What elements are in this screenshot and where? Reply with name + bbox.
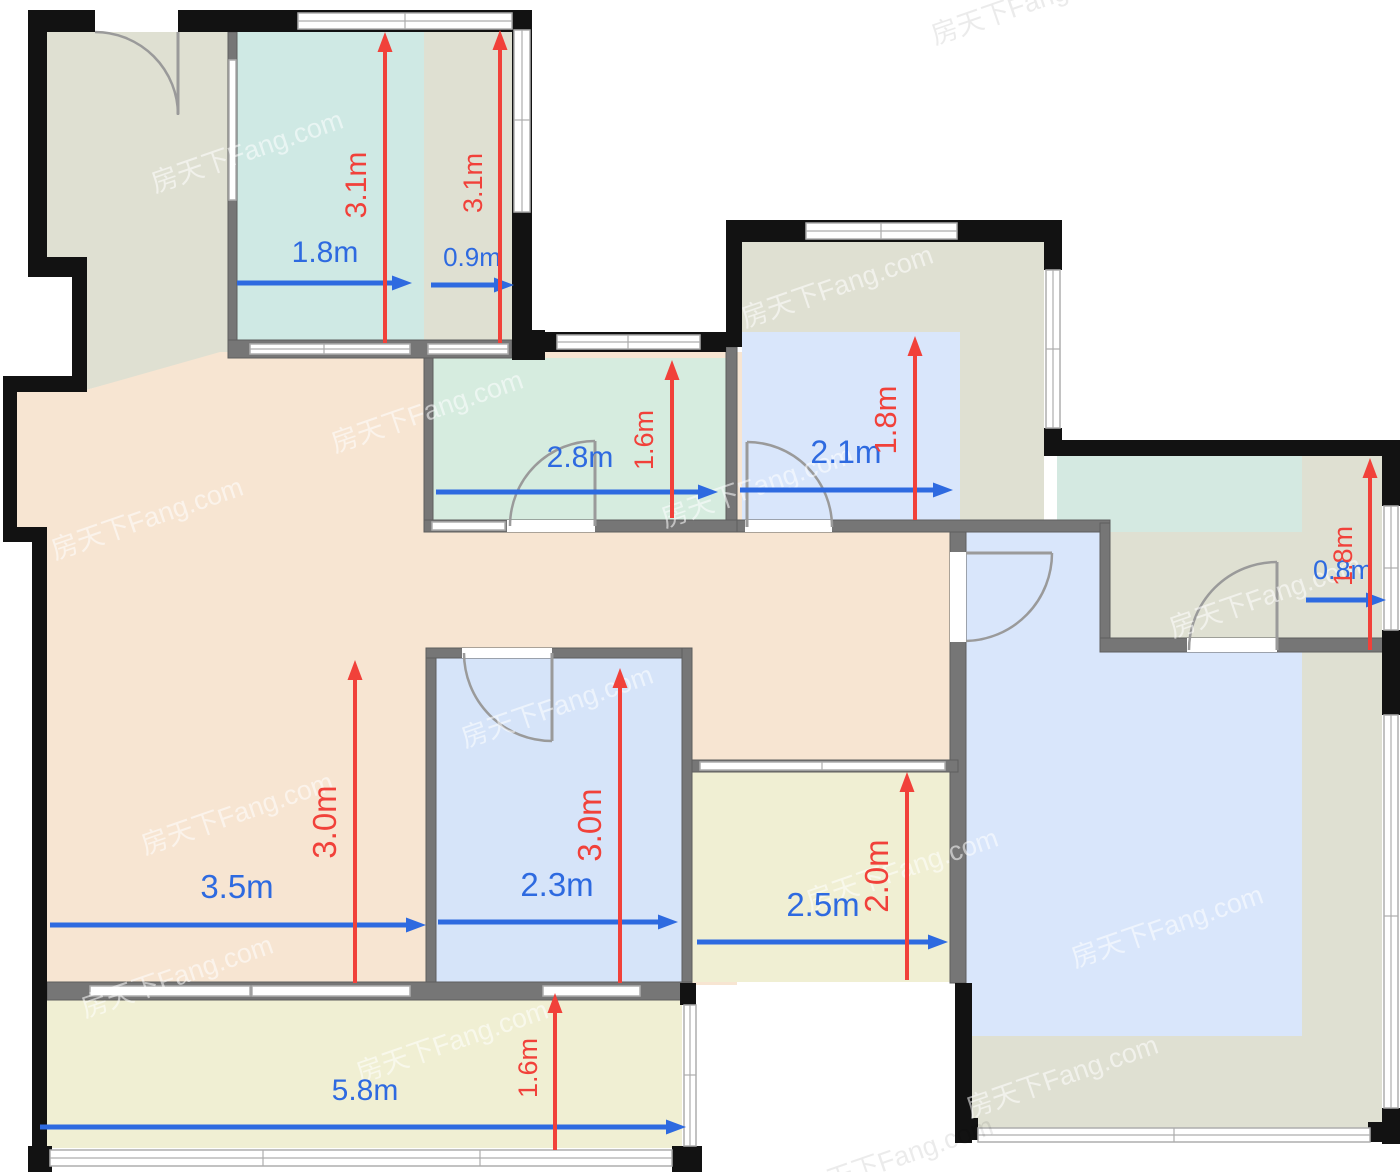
dimension-label: 1.6m bbox=[513, 1038, 543, 1098]
wall bbox=[424, 358, 433, 520]
wall bbox=[1382, 1108, 1400, 1144]
dimension-label: 3.0m bbox=[571, 788, 608, 861]
dimension-label: 1.6m bbox=[629, 410, 659, 470]
door-opening bbox=[950, 552, 966, 642]
watermark-text: 房天下Fang.com bbox=[797, 1111, 997, 1172]
dimension-label: 2.0m bbox=[858, 839, 895, 912]
wall bbox=[3, 392, 17, 532]
wall bbox=[28, 10, 47, 270]
wall bbox=[680, 983, 696, 1005]
bedroom-top-floor bbox=[237, 32, 424, 340]
dimension-label: 0.9m bbox=[443, 242, 501, 272]
dimension-label: 5.8m bbox=[332, 1074, 399, 1107]
floors-layer bbox=[17, 32, 1382, 1148]
window bbox=[252, 986, 410, 996]
dimension-label: 3.1m bbox=[340, 152, 373, 219]
floor-plan: 房天下Fang.com房天下Fang.com房天下Fang.com房天下Fang… bbox=[0, 0, 1400, 1172]
door-opening bbox=[95, 10, 178, 32]
wall bbox=[3, 527, 47, 542]
wall bbox=[1044, 440, 1400, 456]
door-opening bbox=[462, 648, 552, 658]
dimension-label: 1.8m bbox=[1328, 526, 1358, 586]
window bbox=[543, 986, 640, 996]
dimension-label: 2.5m bbox=[786, 886, 859, 923]
dimension-label: 3.5m bbox=[200, 868, 273, 905]
door-opening bbox=[507, 520, 595, 532]
dimension-label: 3.0m bbox=[306, 785, 343, 858]
window bbox=[432, 522, 505, 530]
dimension-label: 2.8m bbox=[547, 441, 614, 474]
wall bbox=[1382, 440, 1400, 506]
dimension-label: 1.8m bbox=[868, 386, 903, 455]
window bbox=[229, 60, 236, 200]
wall bbox=[682, 648, 692, 1000]
wall bbox=[72, 267, 87, 392]
wall bbox=[28, 1146, 52, 1172]
watermark-text: 房天下Fang.com bbox=[927, 0, 1127, 50]
wall bbox=[1100, 523, 1110, 650]
watermark-text: 房天下Fang.com bbox=[1082, 295, 1282, 389]
dimension-label: 1.8m bbox=[292, 236, 359, 269]
door-opening bbox=[745, 520, 832, 532]
wall bbox=[1382, 630, 1400, 715]
wall bbox=[512, 330, 545, 360]
wall bbox=[426, 648, 436, 985]
dimension-label: 3.1m bbox=[458, 153, 488, 213]
wall bbox=[672, 1146, 702, 1172]
door-opening bbox=[1187, 638, 1277, 652]
wall bbox=[3, 376, 87, 392]
dimension-label: 2.3m bbox=[520, 866, 593, 903]
wall bbox=[32, 542, 47, 1150]
wall bbox=[1044, 220, 1062, 270]
